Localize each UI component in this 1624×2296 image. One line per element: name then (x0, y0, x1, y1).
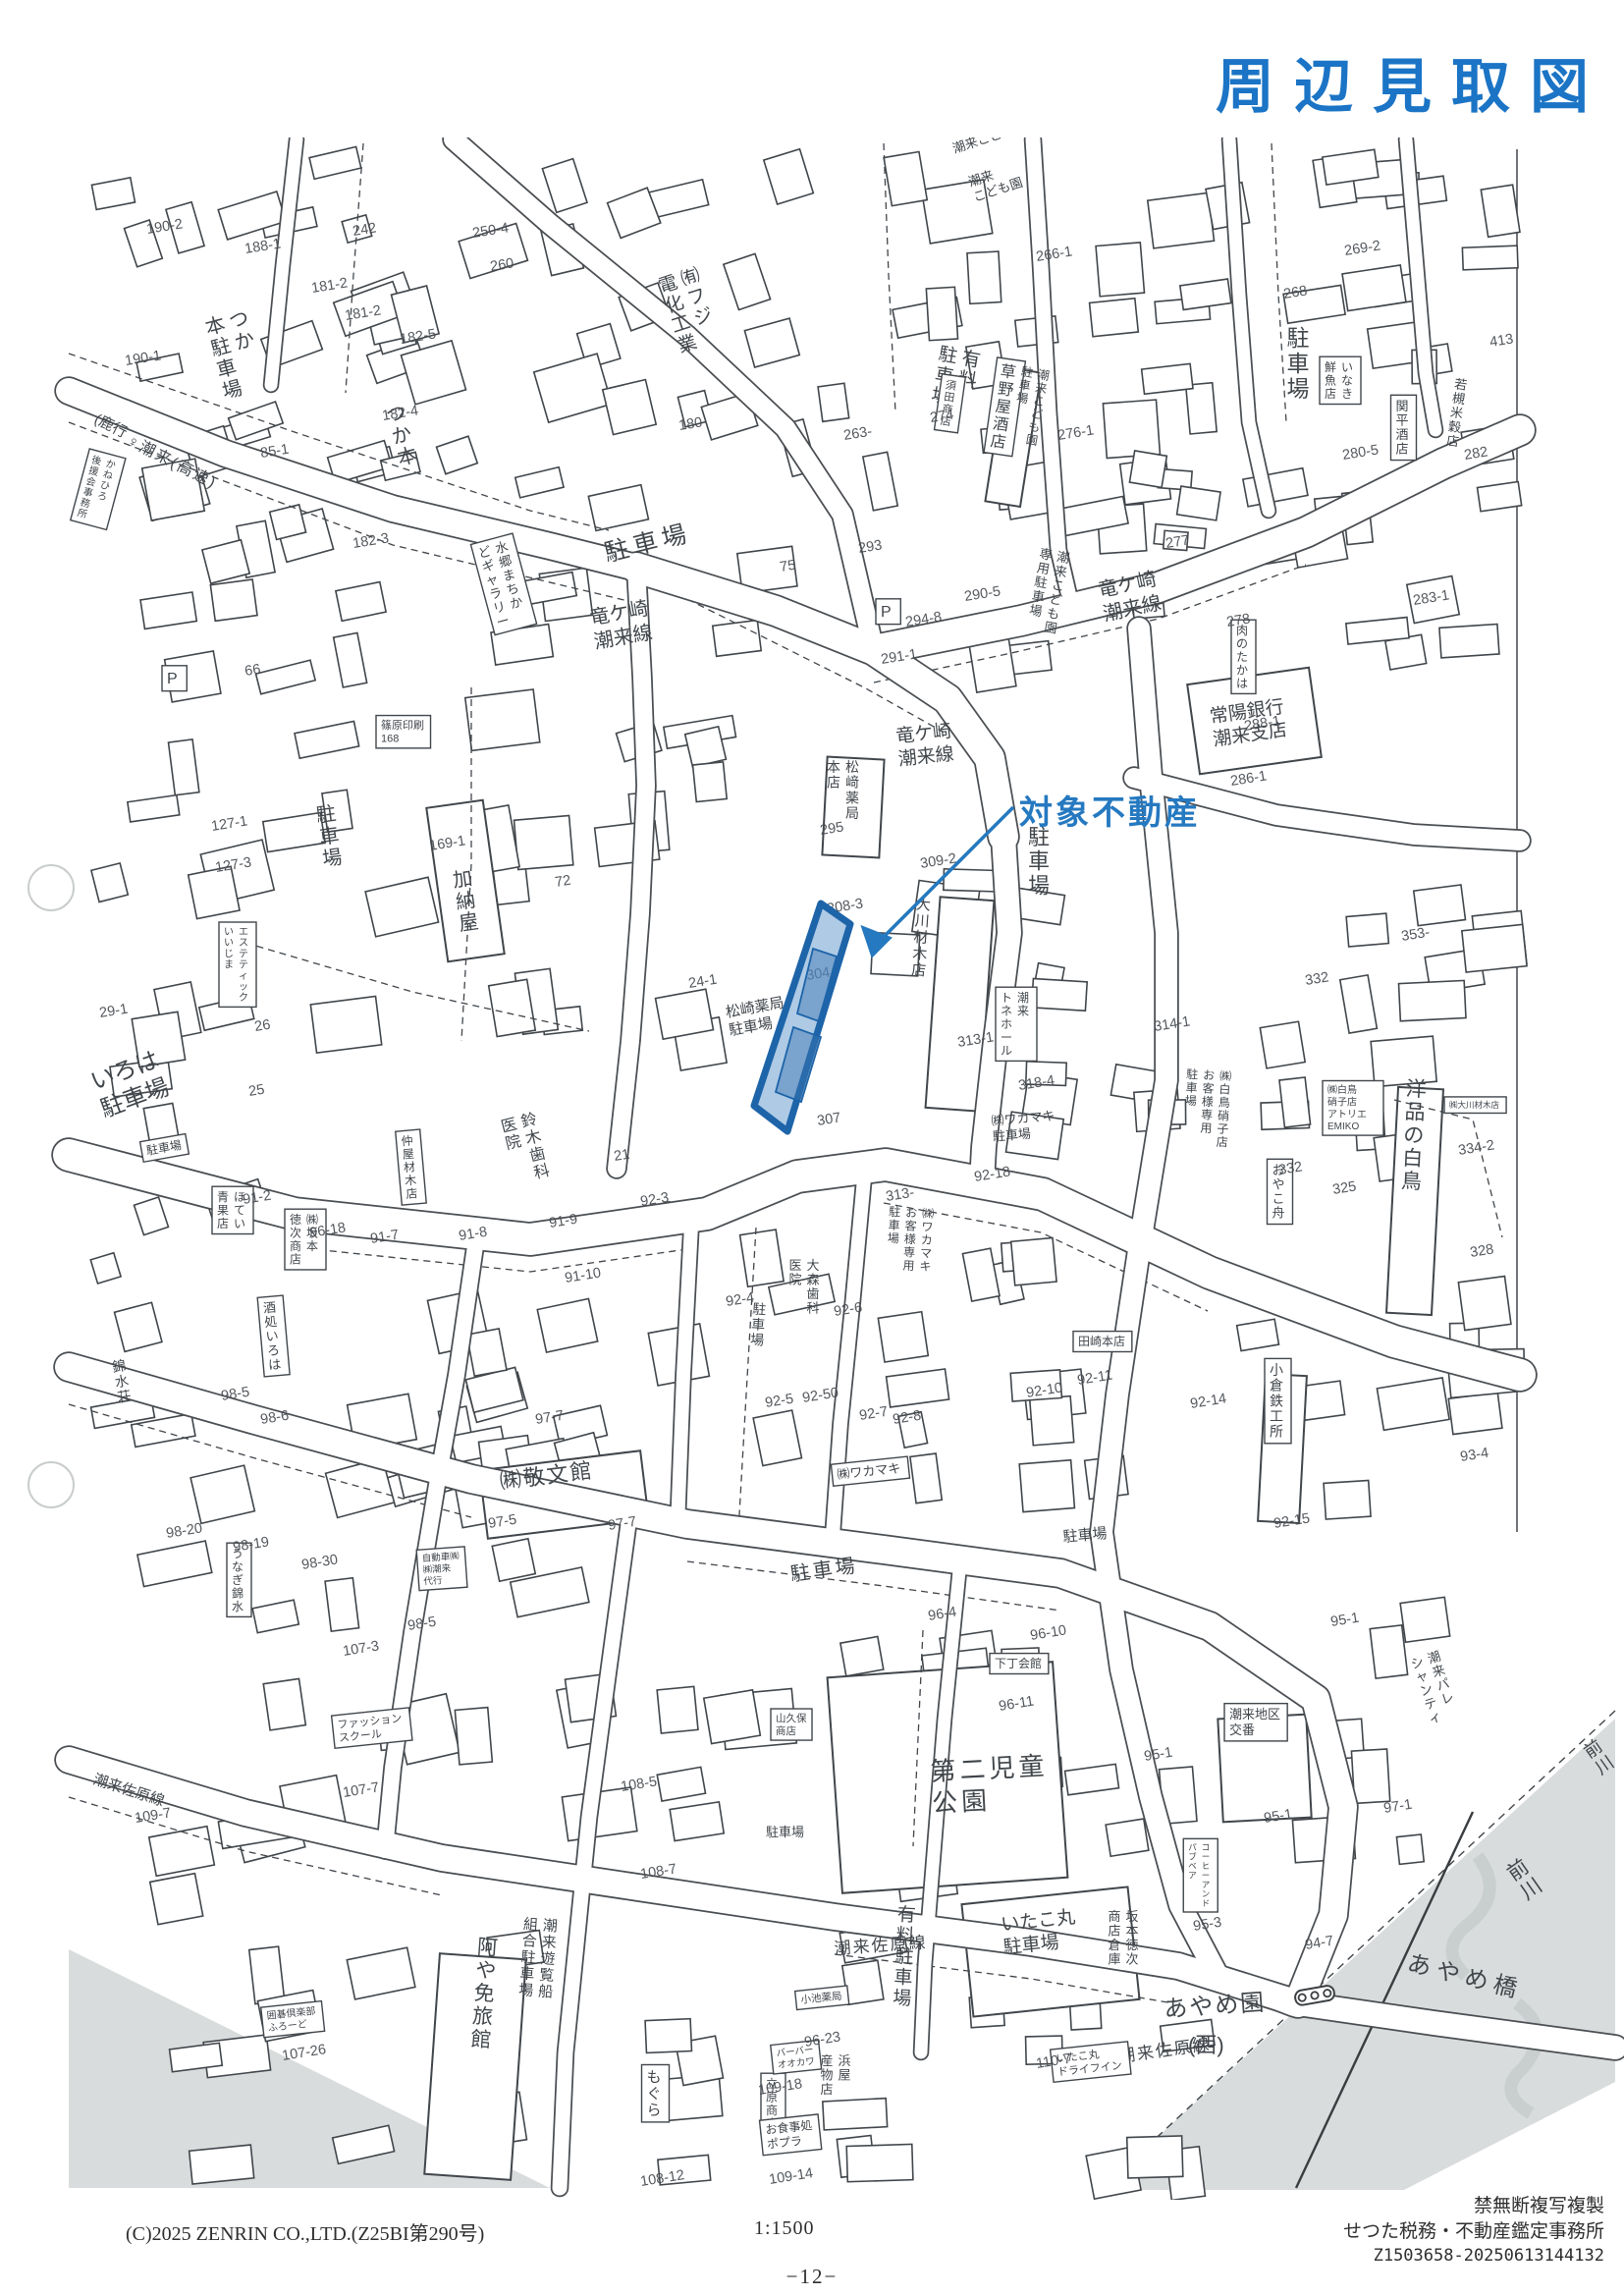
building (489, 979, 536, 1036)
map-label: 駐車場 (750, 1301, 767, 1348)
parcel-number: 182-3 (352, 530, 390, 552)
svg-text:いいじま: いいじま (224, 927, 234, 971)
svg-text:エステティック: エステティック (239, 927, 248, 1004)
parcel-number: 91-7 (369, 1228, 400, 1247)
building (878, 1312, 928, 1362)
svg-text:坂本徳次: 坂本徳次 (1125, 1909, 1138, 1967)
copyright-text: (C)2025 ZENRIN CO.,LTD.(Z25BI第290号) (126, 2217, 484, 2246)
map-label: 駐車場 (766, 1825, 804, 1839)
no-copy-notice: 禁無断複写複製 (1343, 2194, 1604, 2219)
building (926, 287, 957, 340)
map-label: ㈱大川材木店 (1444, 1097, 1506, 1114)
parcel-number: 92-7 (858, 1404, 889, 1424)
building (1351, 1749, 1389, 1803)
svg-text:お客様専用: お客様専用 (1200, 1068, 1216, 1135)
building (656, 989, 714, 1039)
building (603, 380, 656, 435)
parcel-number: 328 (1469, 1241, 1494, 1261)
svg-text:パブベア: パブベア (1188, 1842, 1197, 1881)
svg-text:P: P (167, 671, 178, 687)
building (336, 582, 386, 622)
lot-line (346, 143, 363, 393)
building (1400, 1597, 1450, 1642)
building (1439, 624, 1499, 657)
building (840, 1636, 884, 1675)
building (115, 1302, 162, 1351)
building (1032, 978, 1088, 1011)
building (189, 866, 240, 918)
parcel-number: 109-7 (134, 1805, 172, 1827)
building (1342, 265, 1406, 311)
parcel-number: 332 (1304, 969, 1329, 989)
building (962, 1248, 1000, 1301)
building (537, 1298, 597, 1352)
parcel-number: 280-5 (1341, 442, 1380, 464)
building (1414, 885, 1466, 926)
parcel-number: 98-19 (232, 1534, 270, 1556)
parcel-number: 108-12 (639, 2167, 685, 2190)
building (713, 620, 761, 656)
building (190, 1465, 254, 1523)
zenrin-map: (鹿行♀潮来(高速)つか本駐車場つか本㈲フジ電化工業水郷まちかどギャラリー潮来こ… (0, 137, 1624, 2200)
map-label: 囲碁倶楽部ふろーど (261, 2001, 325, 2038)
parcel-number: 24-1 (687, 972, 718, 992)
parcel-number: 353- (1400, 925, 1431, 945)
building (740, 1230, 785, 1286)
building (1127, 2136, 1183, 2178)
map-label: 潮来パレシャンティ (1409, 1649, 1460, 1726)
building (1478, 482, 1522, 512)
building (724, 253, 771, 309)
building (534, 354, 612, 422)
building (1065, 1764, 1119, 1794)
svg-text:潮来こども: 潮来こども (950, 137, 1015, 156)
parcel-number: 332 (1277, 1159, 1303, 1178)
map-label: 浜屋産物店 (820, 2053, 850, 2097)
building (823, 2099, 888, 2130)
building (90, 1253, 121, 1284)
map-label: ㈱白鳥硝子店アトリエEMIKO (1323, 1081, 1383, 1136)
parcel-number: 95-1 (1329, 1611, 1360, 1630)
building (1396, 1834, 1424, 1864)
building (263, 1678, 305, 1729)
parcel-number: 307 (816, 1110, 841, 1129)
svg-text:医院: 医院 (500, 1117, 523, 1154)
svg-text:駐車場: 駐車場 (887, 1204, 900, 1245)
building (365, 877, 438, 937)
map-label: つか本駐車場 (203, 306, 269, 404)
svg-text:㈱ワカマキ: ㈱ワカマキ (919, 1207, 935, 1274)
building (347, 1947, 415, 1999)
parcel-number: 26 (253, 1017, 271, 1035)
parcel-number: 269-2 (1343, 238, 1381, 259)
building (693, 762, 728, 802)
building (818, 383, 849, 421)
appraisal-map-page: 周辺見取図 (鹿行♀潮来(高速)つか本駐車場つか本㈲フジ電化工業水郷まちかどギャ… (0, 0, 1624, 2296)
building (967, 251, 1001, 303)
building (1129, 451, 1166, 487)
svg-text:㈱大川材木店: ㈱大川材木店 (1449, 1100, 1500, 1110)
svg-text:鮮魚店: 鮮魚店 (1325, 360, 1336, 401)
building (140, 592, 196, 629)
svg-text:産物店: 産物店 (820, 2053, 833, 2097)
map-label: いなき鮮魚店 (1320, 356, 1361, 404)
parcel-number: 98-30 (300, 1552, 339, 1573)
building (437, 436, 478, 473)
building (1106, 1819, 1149, 1856)
building (657, 1767, 705, 1801)
map-label: 竜ケ崎潮来線 (894, 720, 954, 770)
svg-text:あやめ園: あやめ園 (1164, 1990, 1268, 2023)
building (1177, 486, 1220, 520)
parcel-number: 95-1 (1263, 1807, 1293, 1827)
building (1481, 185, 1520, 237)
svg-text:医院: 医院 (788, 1258, 801, 1287)
building (137, 1541, 212, 1586)
svg-text:竜ケ崎潮来線: 竜ケ崎潮来線 (894, 720, 954, 770)
map-label: 駐車場 (140, 1134, 189, 1163)
svg-text:㈱白鳥硝子店: ㈱白鳥硝子店 (1216, 1069, 1231, 1150)
svg-text:駐車場: 駐車場 (788, 1555, 859, 1586)
svg-text:関平酒店: 関平酒店 (1395, 399, 1408, 457)
parcel-number: 293 (857, 537, 883, 557)
parcel-number: 98-5 (220, 1385, 250, 1404)
building (202, 540, 249, 583)
map-label: ㈱白鳥硝子店お客様専用駐車場 (1182, 1066, 1231, 1149)
building (846, 2144, 913, 2181)
building (645, 2019, 691, 2053)
parcel-number: 107-26 (281, 2042, 327, 2064)
building (1279, 1077, 1311, 1127)
svg-text:潮来: 潮来 (1017, 990, 1029, 1017)
building (1096, 243, 1144, 297)
parcel-number: 242 (352, 220, 377, 240)
parcel-number: 66 (244, 662, 261, 680)
map-label: 駐車場 (1287, 325, 1310, 402)
parcel-number: 109-14 (768, 2165, 814, 2188)
building (309, 146, 361, 179)
building (325, 1578, 359, 1631)
building (295, 721, 359, 758)
map-label: 下丁会館 (990, 1654, 1049, 1674)
building (149, 1827, 215, 1877)
building (1340, 975, 1378, 1033)
building (744, 318, 799, 367)
target-property-annotation: 対象不動産 (1019, 786, 1201, 834)
building (764, 149, 814, 204)
parcel-number: 93-4 (1459, 1446, 1489, 1465)
building (1142, 363, 1193, 394)
map-label: 小倉鉄工所 (1265, 1358, 1291, 1443)
map-label: 肉のたかは (1231, 620, 1256, 693)
map-scale: 1:1500 (754, 2217, 815, 2240)
map-label: P (876, 599, 900, 625)
map-label: 駐車場 (1028, 825, 1050, 898)
map-label: あやめ園 (1164, 1990, 1268, 2023)
building (1324, 1480, 1371, 1519)
svg-text:竜ケ崎潮来線: 竜ケ崎潮来線 (588, 597, 654, 653)
building (252, 1600, 298, 1633)
svg-text:駐車場: 駐車場 (1184, 1066, 1198, 1108)
map-label: 潮来こども園 (966, 160, 1024, 205)
building (256, 660, 316, 694)
building (910, 1453, 942, 1503)
map-label: お食事処ポプラ (760, 2114, 822, 2156)
parcel-number: 180 (677, 414, 703, 434)
svg-text:駐車場: 駐車場 (766, 1825, 804, 1839)
road (677, 1226, 691, 1528)
svg-text:組合駐車場: 組合駐車場 (518, 1916, 539, 1999)
building (514, 815, 573, 869)
office-block: 禁無断複写複製 せつた税務・不動産鑑定事務所 Z1503658-20250613… (1343, 2194, 1604, 2269)
svg-text:もぐら: もぐら (646, 2069, 661, 2119)
svg-text:本店: 本店 (827, 759, 840, 791)
map-label: エステティックいいじま (219, 922, 256, 1007)
parcel-number: 92-14 (1189, 1391, 1227, 1412)
building (670, 1802, 724, 1841)
building (455, 1708, 492, 1765)
building (1377, 1378, 1449, 1430)
building (168, 739, 198, 795)
building (1237, 1319, 1279, 1350)
building (249, 1946, 285, 2003)
svg-text:松﨑薬局: 松﨑薬局 (845, 759, 859, 821)
building (135, 1197, 169, 1235)
svg-text:P: P (881, 604, 892, 621)
map-label: 竜ケ崎潮来線 (588, 597, 654, 653)
building (657, 1686, 698, 1733)
parcel-number: 72 (554, 873, 571, 891)
page-title: 周辺見取図 (1216, 39, 1608, 125)
svg-text:潮来遊覧船: 潮来遊覧船 (538, 1918, 559, 2001)
parcel-number: 98-5 (406, 1614, 437, 1634)
svg-text:トネホール: トネホール (1001, 991, 1012, 1058)
map-label: (西) (1188, 2033, 1224, 2057)
svg-text:浜屋: 浜屋 (838, 2053, 850, 2083)
building (1186, 383, 1218, 434)
svg-text:肉のたかは: 肉のたかは (1236, 624, 1248, 690)
building (1448, 1393, 1502, 1435)
map-label: 篠原印刷168 (376, 716, 431, 748)
parcel-number: 92-5 (764, 1392, 794, 1411)
parcel-number: 413 (1489, 331, 1514, 351)
map-label: 潮来こども (950, 137, 1015, 156)
map-label: 潮来地区交番 (1224, 1704, 1287, 1741)
svg-text:いなき: いなき (1341, 360, 1353, 401)
building (1462, 246, 1518, 270)
svg-text:駐車場: 駐車場 (750, 1301, 767, 1348)
map-label: 潮来トネホール (996, 987, 1037, 1061)
building (91, 178, 135, 210)
building (887, 1369, 949, 1407)
svg-text:お客様専用: お客様専用 (902, 1206, 918, 1273)
building (189, 2145, 254, 2184)
building (466, 1329, 507, 1376)
parcel-number: 97-1 (1382, 1797, 1413, 1817)
parcel-number: 108-5 (620, 1774, 658, 1795)
parcel-number: 260 (489, 255, 514, 275)
building (492, 1539, 535, 1581)
map-label: P (162, 666, 187, 691)
svg-text:小倉鉄工所: 小倉鉄工所 (1270, 1362, 1283, 1440)
svg-text:コーヒーアンド: コーヒーアンド (1202, 1842, 1211, 1908)
map-label: 山久保商店 (771, 1709, 812, 1740)
parcel-number: 107-7 (342, 1779, 380, 1801)
building (542, 159, 587, 213)
building (128, 795, 180, 822)
map-label: 関平酒店 (1391, 395, 1417, 460)
map-label: 仲屋材木店 (396, 1129, 426, 1205)
svg-text:下丁会館: 下丁会館 (995, 1656, 1042, 1670)
svg-text:鈴木歯科: 鈴木歯科 (519, 1110, 552, 1182)
svg-text:つか: つか (227, 307, 257, 355)
parcel-number: 92-4 (725, 1290, 755, 1310)
building (210, 579, 257, 621)
svg-text:駐車場: 駐車場 (1287, 325, 1310, 402)
map-label: 鈴木歯科医院 (499, 1110, 551, 1187)
building (465, 689, 540, 750)
building (685, 727, 727, 767)
building (1260, 1021, 1305, 1068)
building (1090, 299, 1139, 337)
parcel-number: 21 (613, 1147, 630, 1165)
parcel-number: 29-1 (98, 1002, 129, 1021)
building (1462, 924, 1527, 972)
page-number: −12− (0, 2265, 1624, 2289)
parcel-number: 98-20 (165, 1520, 203, 1542)
map-label: かねひろ後援会事務所 (71, 449, 126, 529)
building (1399, 980, 1466, 1020)
parcel-number: 334-2 (1457, 1137, 1495, 1159)
building (1458, 1277, 1511, 1331)
building (1019, 1460, 1074, 1512)
parcel-number: 25 (247, 1082, 265, 1100)
building (1103, 400, 1160, 458)
parcel-number: 127-1 (210, 813, 248, 835)
building (150, 1874, 203, 1925)
svg-text:商店倉庫: 商店倉庫 (1108, 1909, 1120, 1967)
building (91, 863, 128, 902)
map-label: コーヒーアンドパブベア (1183, 1838, 1218, 1912)
building (1370, 1625, 1407, 1678)
parcel-number: 313- (885, 1185, 915, 1205)
building (884, 152, 927, 206)
building (1346, 913, 1388, 947)
building (863, 452, 897, 511)
map-label: 小池薬局 (795, 1986, 849, 2009)
office-name: せつた税務・不動産鑑定事務所 (1343, 2219, 1604, 2245)
parcel-number: 276-1 (1056, 422, 1095, 444)
building (1180, 279, 1231, 309)
building (515, 467, 564, 498)
parcel-number: 96-10 (1029, 1622, 1067, 1644)
building (1011, 1237, 1056, 1285)
building (1148, 192, 1215, 247)
svg-text:駐車場: 駐車場 (1028, 825, 1050, 898)
building (704, 1690, 761, 1744)
parcel-number: 91-10 (564, 1265, 602, 1286)
parcel-number: 95-3 (1192, 1915, 1222, 1935)
building (588, 485, 648, 531)
parcel-number: 263- (842, 424, 873, 444)
svg-text:青果店: 青果店 (217, 1190, 229, 1230)
building (334, 632, 367, 686)
parcel-number: 325 (1331, 1178, 1357, 1198)
lot-line (1272, 143, 1286, 422)
parcel-number: 181-2 (310, 275, 349, 297)
road (636, 568, 1003, 837)
map-label: 駐車場 (788, 1555, 859, 1586)
svg-text:(西): (西) (1188, 2033, 1224, 2057)
parcel-number: 290-5 (963, 583, 1001, 605)
parcel-number: 75 (779, 558, 796, 575)
building (310, 997, 381, 1054)
svg-text:うなぎ錦水: うなぎ錦水 (232, 1547, 244, 1613)
map-label: ㈱ワカマキお客様専用駐車場 (886, 1204, 935, 1274)
svg-text:田崎本店: 田崎本店 (1078, 1335, 1125, 1348)
parcel-number: 96-23 (803, 2029, 841, 2050)
map-label: 田崎本店 (1073, 1332, 1132, 1352)
parcel-number: 286-1 (1229, 768, 1268, 790)
map-label: 自動車㈱㈱潮来代行 (416, 1547, 467, 1591)
building (1030, 1396, 1074, 1446)
map-label: 酒処いろは (257, 1295, 290, 1377)
building (753, 1410, 801, 1466)
svg-text:徳次商店: 徳次商店 (290, 1212, 301, 1266)
svg-text:大森歯科: 大森歯科 (806, 1258, 819, 1316)
map-label: もぐら (642, 2065, 670, 2122)
parcel-number: 107-3 (342, 1638, 380, 1660)
parcel-number: 95-1 (1143, 1745, 1173, 1765)
svg-text:潮来こども園: 潮来こども園 (966, 160, 1024, 205)
